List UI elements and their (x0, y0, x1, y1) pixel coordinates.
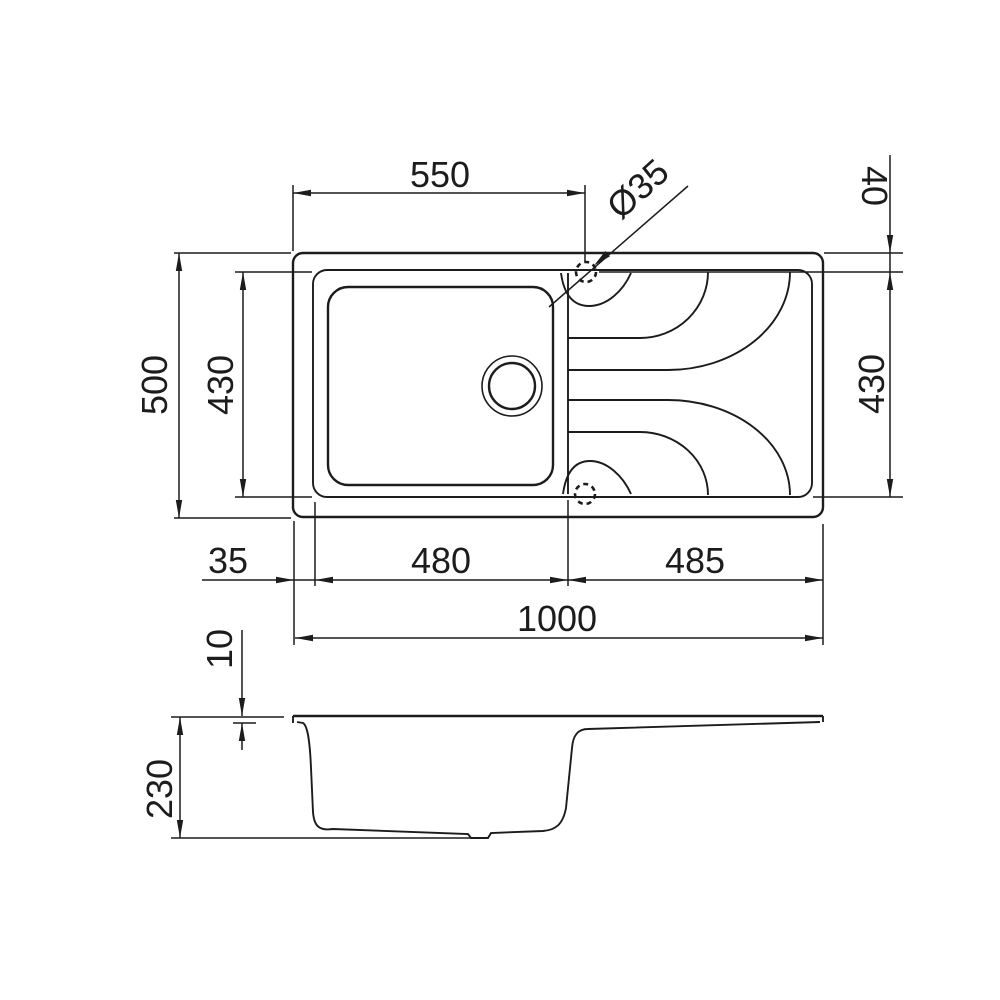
dim-550-lines (293, 185, 585, 261)
drainer-groove-2 (568, 272, 790, 370)
tap-hole-relief-top (561, 273, 631, 306)
dim-10-arrows (239, 698, 245, 741)
dim-230-lines (171, 717, 487, 838)
drain-inner-circle (489, 363, 535, 409)
tap-hole-top (576, 262, 596, 282)
dim-230-label: 230 (139, 759, 180, 819)
dim-485-label: 485 (665, 540, 725, 581)
dim-10-label: 10 (199, 629, 240, 669)
drain-outer-circle (482, 356, 542, 416)
dim-430-left-lines (235, 272, 312, 497)
bowl-edge (328, 287, 553, 485)
side-view (293, 716, 823, 838)
dim-430-left-label: 430 (200, 355, 241, 415)
dim-480-label: 480 (411, 540, 471, 581)
dim-550-label: 550 (410, 154, 470, 195)
tap-hole-relief-bottom (563, 461, 631, 494)
dim-bottom-row-lines (202, 500, 823, 645)
dim-430-right-label: 430 (851, 354, 892, 414)
drainer-groove-4 (568, 432, 708, 495)
section-bowl-profile (297, 722, 820, 838)
dim-hole-diameter-label: Ø35 (599, 151, 677, 227)
dim-40-label: 40 (854, 166, 895, 206)
sink-dimension-drawing: 550 Ø35 40 430 500 430 35 480 485 1000 1… (0, 0, 1000, 1000)
tap-hole-bottom (575, 484, 595, 504)
drainer-groove-3 (568, 400, 790, 495)
sink-outer-edge (293, 253, 823, 517)
dim-1000-label: 1000 (517, 598, 597, 639)
plan-view (293, 253, 823, 517)
drawing-canvas: 550 Ø35 40 430 500 430 35 480 485 1000 1… (0, 0, 1000, 1000)
sink-rim-inner-edge (313, 270, 812, 497)
dim-500-label: 500 (134, 355, 175, 415)
dim-35-label: 35 (208, 540, 248, 581)
